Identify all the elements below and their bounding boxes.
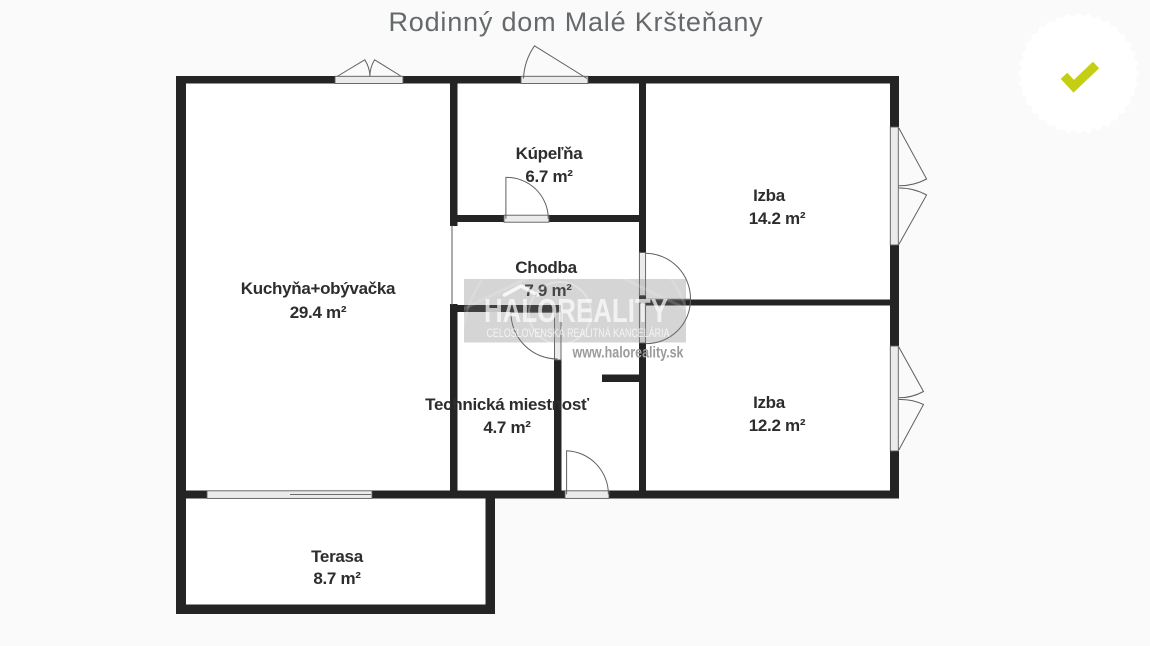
svg-text:6.7 m²: 6.7 m² bbox=[525, 167, 573, 186]
svg-text:Technická miestnosť: Technická miestnosť bbox=[425, 395, 590, 414]
svg-text:29.4 m²: 29.4 m² bbox=[290, 303, 347, 322]
svg-text:Izba: Izba bbox=[753, 393, 786, 412]
svg-text:4.7 m²: 4.7 m² bbox=[483, 418, 531, 437]
svg-text:Kuchyňa+obývačka: Kuchyňa+obývačka bbox=[241, 279, 396, 298]
svg-text:www.haloreality.sk: www.haloreality.sk bbox=[572, 345, 684, 362]
svg-text:Kúpeľňa: Kúpeľňa bbox=[516, 144, 584, 163]
svg-text:Rodinný dom Malé Kršteňany: Rodinný dom Malé Kršteňany bbox=[389, 7, 764, 37]
svg-text:HALOREALITY: HALOREALITY bbox=[484, 292, 668, 329]
svg-text:Chodba: Chodba bbox=[515, 258, 577, 277]
svg-text:14.2 m²: 14.2 m² bbox=[749, 209, 806, 228]
svg-text:12.2 m²: 12.2 m² bbox=[749, 416, 806, 435]
svg-text:Izba: Izba bbox=[753, 186, 786, 205]
svg-text:Terasa: Terasa bbox=[311, 547, 364, 566]
svg-text:CELOSLOVENSKÁ REALITNÁ KANCELÁ: CELOSLOVENSKÁ REALITNÁ KANCELÁRIA bbox=[487, 325, 670, 340]
svg-text:8.7 m²: 8.7 m² bbox=[313, 569, 361, 588]
